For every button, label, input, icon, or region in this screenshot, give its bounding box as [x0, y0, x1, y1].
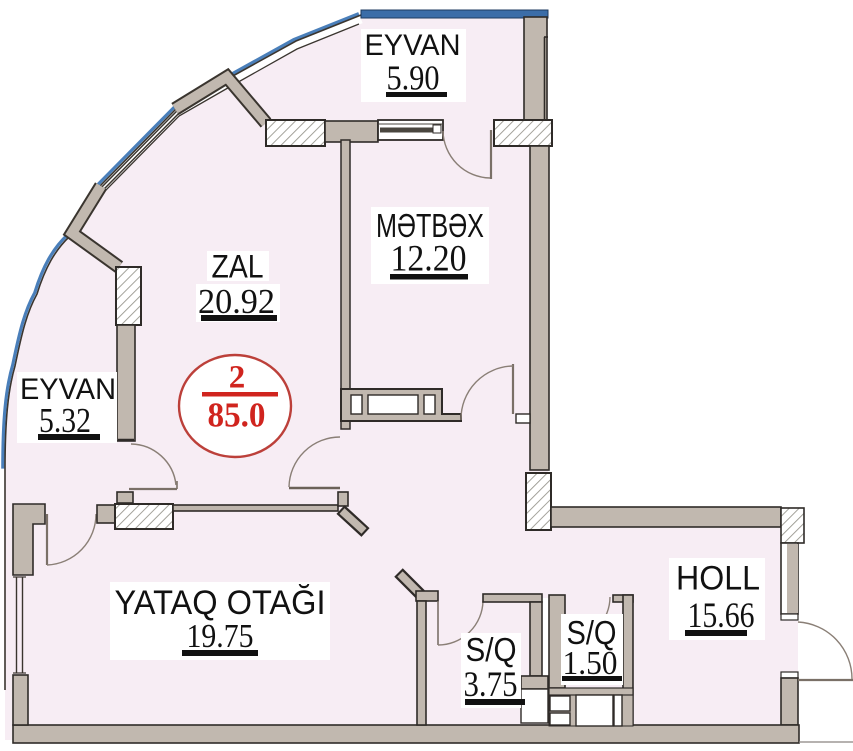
svg-text:15.66: 15.66	[688, 595, 755, 635]
svg-text:12.20: 12.20	[391, 239, 467, 280]
svg-text:S/Q: S/Q	[466, 631, 517, 668]
svg-text:85.0: 85.0	[208, 396, 266, 435]
svg-text:ZAL: ZAL	[212, 249, 264, 285]
svg-text:EYVAN: EYVAN	[365, 29, 461, 62]
svg-text:YATAQ OTAĞI: YATAQ OTAĞI	[115, 584, 326, 622]
svg-text:HOLL: HOLL	[676, 560, 760, 598]
svg-text:5.90: 5.90	[387, 59, 440, 98]
svg-text:3.75: 3.75	[464, 664, 518, 704]
svg-text:2: 2	[229, 360, 246, 396]
svg-text:19.75: 19.75	[187, 618, 254, 655]
